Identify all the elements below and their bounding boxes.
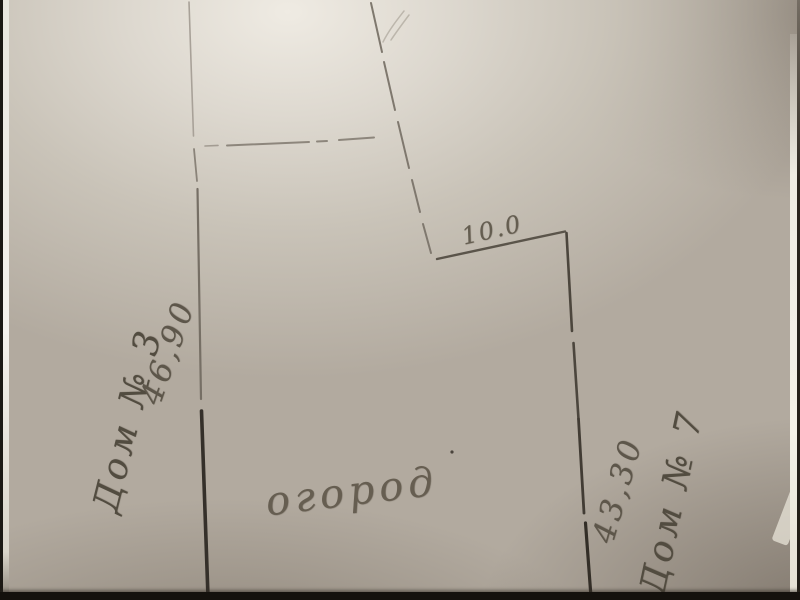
photo-edge-left-light [3,0,9,600]
diagonal-dashed-line [371,3,431,253]
photo-edge-right-light [790,34,797,600]
left-boundary-line [189,2,208,597]
top-dashed-line [205,138,374,147]
paper-speck [450,450,453,453]
faint-pencil-mark [383,11,409,42]
photo-edge-bottom-dark [0,592,800,600]
plot-sketch-photo: Дом № 3 46,90 10.0 огород 43,30 Дом № 7 [0,0,800,600]
right-boundary-line [567,233,592,597]
